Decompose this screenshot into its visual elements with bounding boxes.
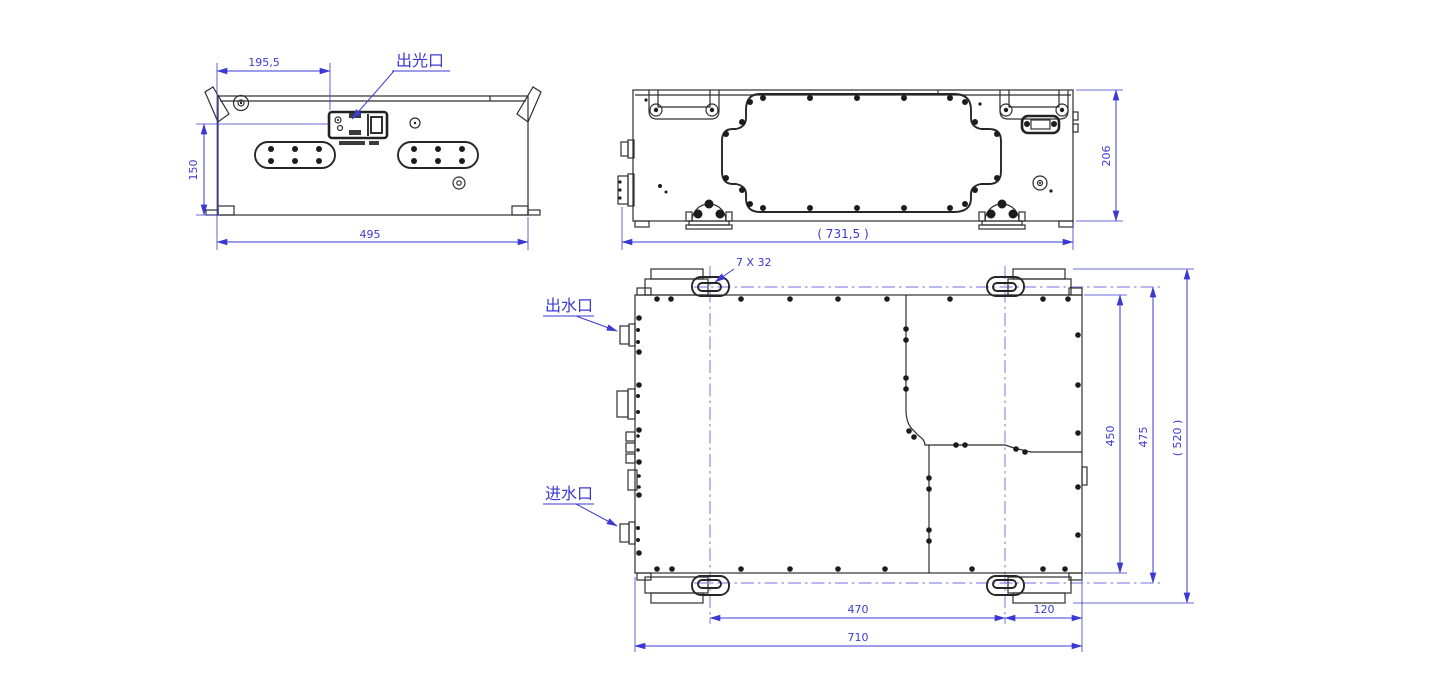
drawing-canvas: 195,5 出光口 150 495 bbox=[0, 0, 1442, 685]
cad-drawing: 195,5 出光口 150 495 bbox=[0, 0, 1442, 685]
top-body bbox=[635, 288, 1087, 580]
top-panel-seams bbox=[903, 295, 1082, 573]
top-handle-br bbox=[1008, 577, 1071, 603]
front-right-handle bbox=[517, 87, 541, 122]
dim-side-height: 206 bbox=[1100, 146, 1113, 167]
front-feet bbox=[206, 206, 540, 215]
side-bracket-left bbox=[649, 90, 719, 119]
water-inlet-leader bbox=[576, 504, 617, 526]
side-screw bbox=[644, 98, 1052, 193]
gasket-screw-dots bbox=[723, 95, 1000, 211]
top-view: 450 475 ( 520 ) 470 120 710 7 X 32 出水口 进… bbox=[543, 256, 1194, 652]
water-outlet-leader bbox=[576, 316, 617, 331]
seam-screw-dots bbox=[903, 326, 1028, 544]
label-light-output: 出光口 bbox=[396, 51, 444, 70]
top-handle-tr bbox=[1008, 269, 1071, 295]
side-left-connectors bbox=[618, 140, 634, 206]
dim-top-edge-offset: 120 bbox=[1034, 603, 1055, 616]
laser-output-port bbox=[329, 112, 387, 145]
port-label-smudge bbox=[339, 141, 365, 145]
dim-front-width: 495 bbox=[360, 228, 381, 241]
dim-top-width: 710 bbox=[848, 631, 869, 644]
label-water-outlet: 出水口 bbox=[545, 296, 593, 315]
dim-front-port-offset: 195,5 bbox=[248, 56, 280, 69]
side-bracket-right bbox=[1000, 90, 1068, 119]
dim-top-body-height: 450 bbox=[1104, 426, 1117, 447]
top-handle-tl bbox=[645, 269, 708, 295]
side-view: 206 ( 731,5 ) bbox=[618, 90, 1123, 250]
top-left-connector bbox=[617, 389, 640, 419]
slot-callout-leader bbox=[715, 269, 734, 282]
label-slot-callout: 7 X 32 bbox=[736, 256, 772, 269]
label-water-inlet: 进水口 bbox=[545, 484, 593, 503]
water-inlet-port bbox=[620, 522, 640, 544]
dim-front-height: 150 bbox=[187, 160, 200, 181]
side-dimensions: 206 ( 731,5 ) bbox=[622, 90, 1123, 250]
front-vent-cutouts bbox=[255, 142, 478, 168]
side-foot-right bbox=[979, 200, 1025, 230]
water-outlet-port bbox=[620, 324, 640, 346]
gasket-panel bbox=[722, 94, 1001, 212]
dim-side-width: ( 731,5 ) bbox=[817, 227, 868, 241]
side-foot-left bbox=[686, 200, 732, 230]
dim-top-slot-span: 470 bbox=[848, 603, 869, 616]
dim-top-overall-height: ( 520 ) bbox=[1171, 420, 1184, 457]
top-edge-screw-dots bbox=[636, 296, 1081, 572]
front-view: 195,5 出光口 150 495 bbox=[187, 51, 541, 250]
dim-top-centerline-height: 475 bbox=[1137, 427, 1150, 448]
